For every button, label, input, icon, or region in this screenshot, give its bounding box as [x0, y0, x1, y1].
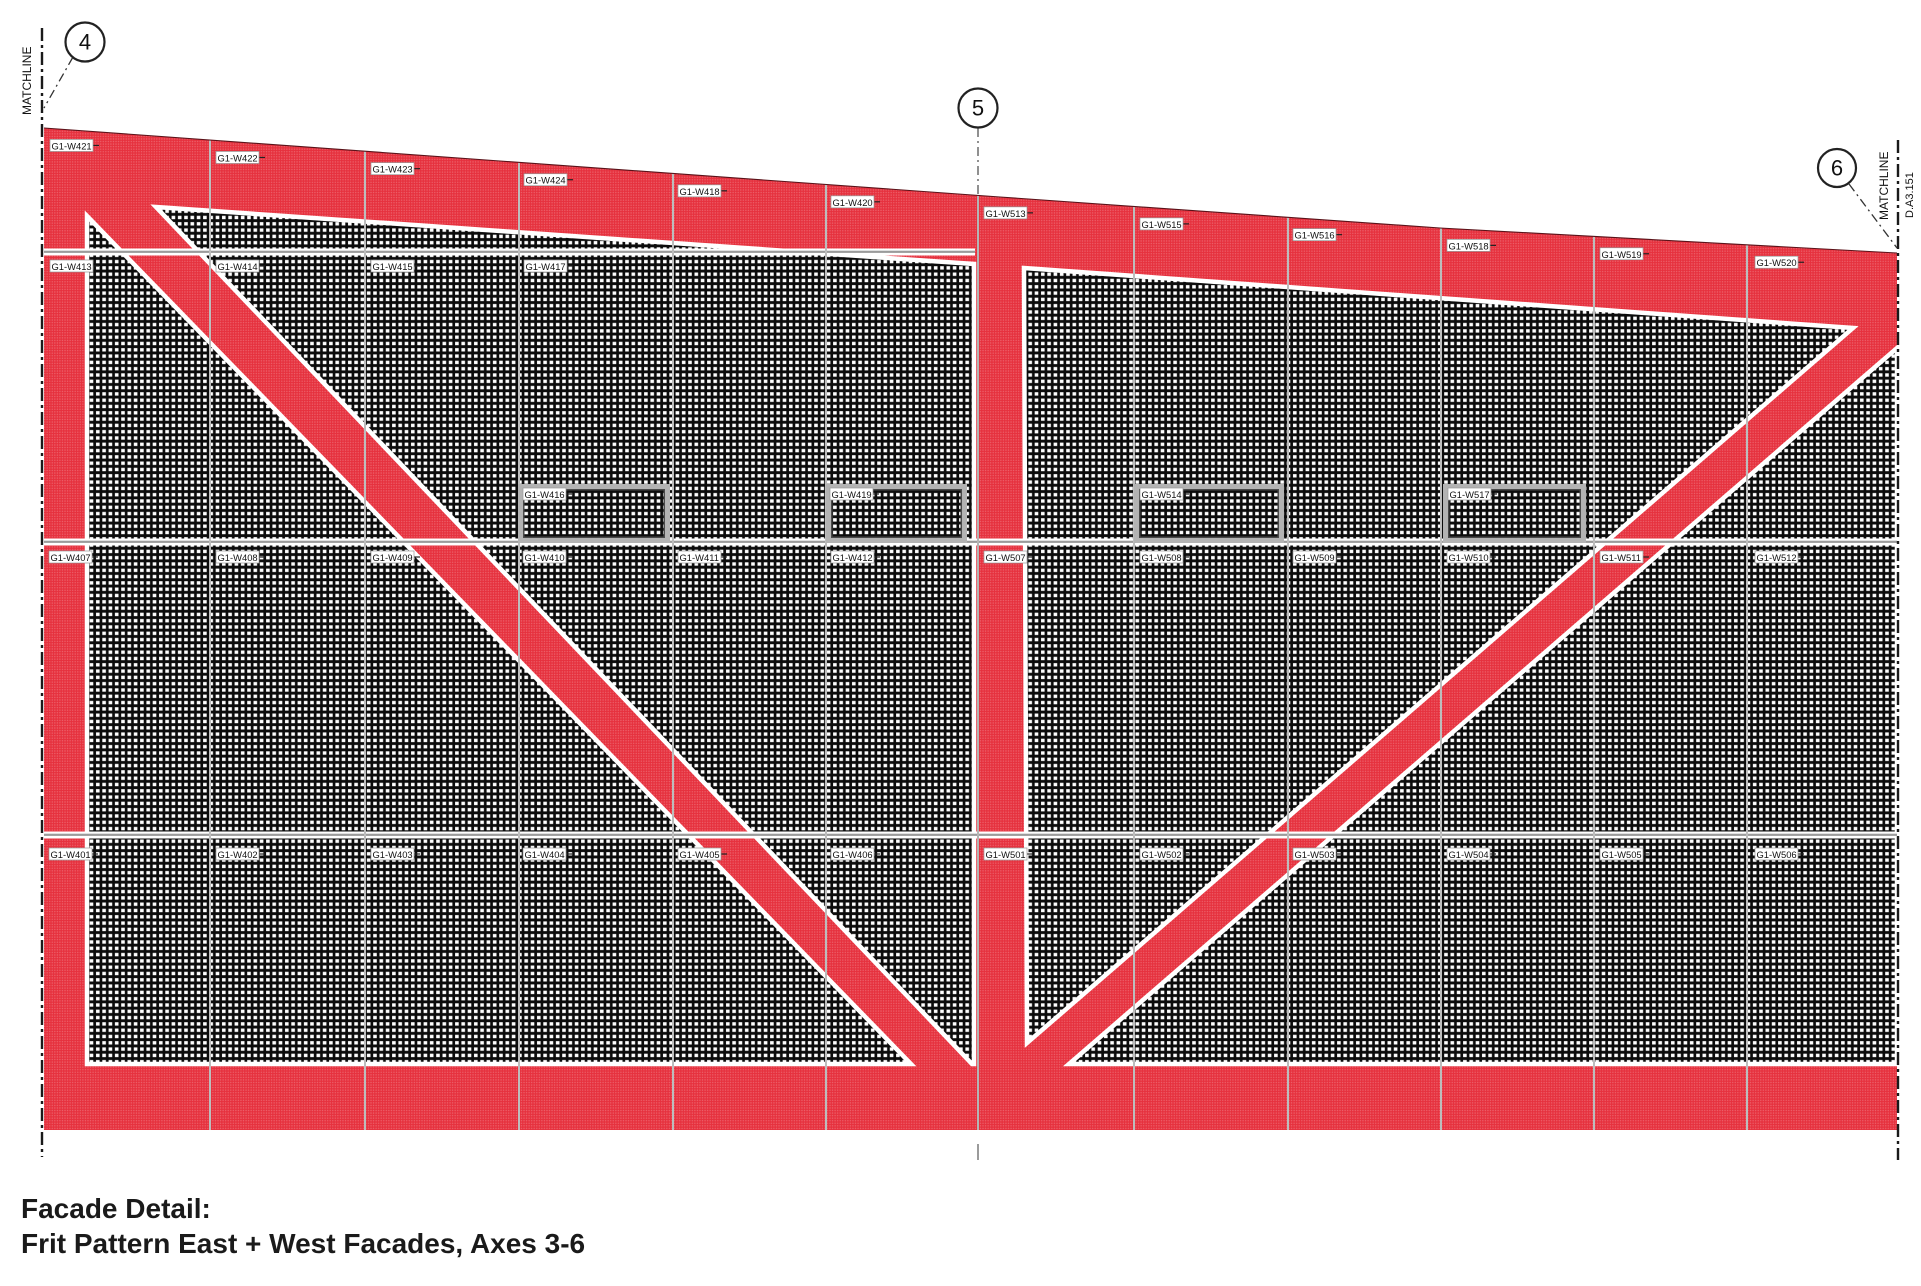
svg-text:G1-W416: G1-W416 — [525, 489, 565, 500]
svg-text:MATCHLINE: MATCHLINE — [1877, 152, 1891, 220]
svg-text:G1-W510: G1-W510 — [1449, 552, 1489, 563]
svg-text:Facade Detail:: Facade Detail: — [21, 1193, 211, 1224]
svg-text:4: 4 — [79, 30, 91, 55]
svg-text:G1-W423: G1-W423 — [373, 164, 413, 175]
svg-text:G1-W517: G1-W517 — [1450, 489, 1490, 500]
svg-text:G1-W502: G1-W502 — [1142, 849, 1182, 860]
svg-text:G1-W512: G1-W512 — [1757, 552, 1797, 563]
svg-text:G1-W424: G1-W424 — [526, 175, 566, 186]
svg-text:D.A3.151: D.A3.151 — [1904, 172, 1916, 218]
svg-text:G1-W408: G1-W408 — [218, 552, 258, 563]
svg-text:G1-W413: G1-W413 — [52, 261, 92, 272]
svg-text:G1-W520: G1-W520 — [1757, 257, 1797, 268]
svg-text:5: 5 — [972, 96, 984, 121]
svg-text:G1-W518: G1-W518 — [1449, 240, 1489, 251]
svg-text:G1-W503: G1-W503 — [1295, 849, 1335, 860]
svg-text:G1-W411: G1-W411 — [680, 552, 719, 563]
svg-text:G1-W514: G1-W514 — [1142, 489, 1182, 500]
svg-text:G1-W401: G1-W401 — [51, 849, 91, 860]
svg-text:G1-W504: G1-W504 — [1449, 849, 1489, 860]
svg-text:G1-W420: G1-W420 — [833, 197, 873, 208]
svg-text:G1-W410: G1-W410 — [525, 552, 565, 563]
svg-text:Frit Pattern East + West Facad: Frit Pattern East + West Facades, Axes 3… — [21, 1228, 585, 1259]
svg-text:G1-W407: G1-W407 — [51, 552, 91, 563]
svg-text:G1-W506: G1-W506 — [1757, 849, 1797, 860]
svg-text:G1-W508: G1-W508 — [1142, 552, 1182, 563]
svg-text:G1-W516: G1-W516 — [1295, 230, 1335, 241]
svg-text:G1-W422: G1-W422 — [218, 152, 258, 163]
svg-text:6: 6 — [1831, 156, 1843, 181]
svg-text:G1-W417: G1-W417 — [526, 261, 566, 272]
svg-text:G1-W509: G1-W509 — [1295, 552, 1335, 563]
svg-text:MATCHLINE: MATCHLINE — [20, 47, 34, 115]
svg-text:G1-W419: G1-W419 — [832, 489, 872, 500]
svg-text:G1-W505: G1-W505 — [1602, 849, 1642, 860]
svg-text:G1-W405: G1-W405 — [680, 849, 720, 860]
svg-text:G1-W507: G1-W507 — [986, 552, 1026, 563]
svg-text:G1-W421: G1-W421 — [52, 140, 92, 151]
svg-text:G1-W415: G1-W415 — [373, 261, 413, 272]
svg-text:G1-W501: G1-W501 — [986, 849, 1026, 860]
svg-text:G1-W511: G1-W511 — [1602, 552, 1641, 563]
svg-text:G1-W513: G1-W513 — [986, 208, 1026, 219]
svg-text:G1-W409: G1-W409 — [373, 552, 413, 563]
svg-text:G1-W519: G1-W519 — [1602, 249, 1642, 260]
svg-text:G1-W412: G1-W412 — [833, 552, 873, 563]
svg-text:G1-W403: G1-W403 — [373, 849, 413, 860]
svg-text:G1-W402: G1-W402 — [218, 849, 258, 860]
svg-text:G1-W418: G1-W418 — [680, 186, 720, 197]
svg-text:G1-W404: G1-W404 — [525, 849, 565, 860]
svg-text:G1-W406: G1-W406 — [833, 849, 873, 860]
svg-text:G1-W414: G1-W414 — [218, 261, 258, 272]
svg-text:G1-W515: G1-W515 — [1142, 219, 1182, 230]
